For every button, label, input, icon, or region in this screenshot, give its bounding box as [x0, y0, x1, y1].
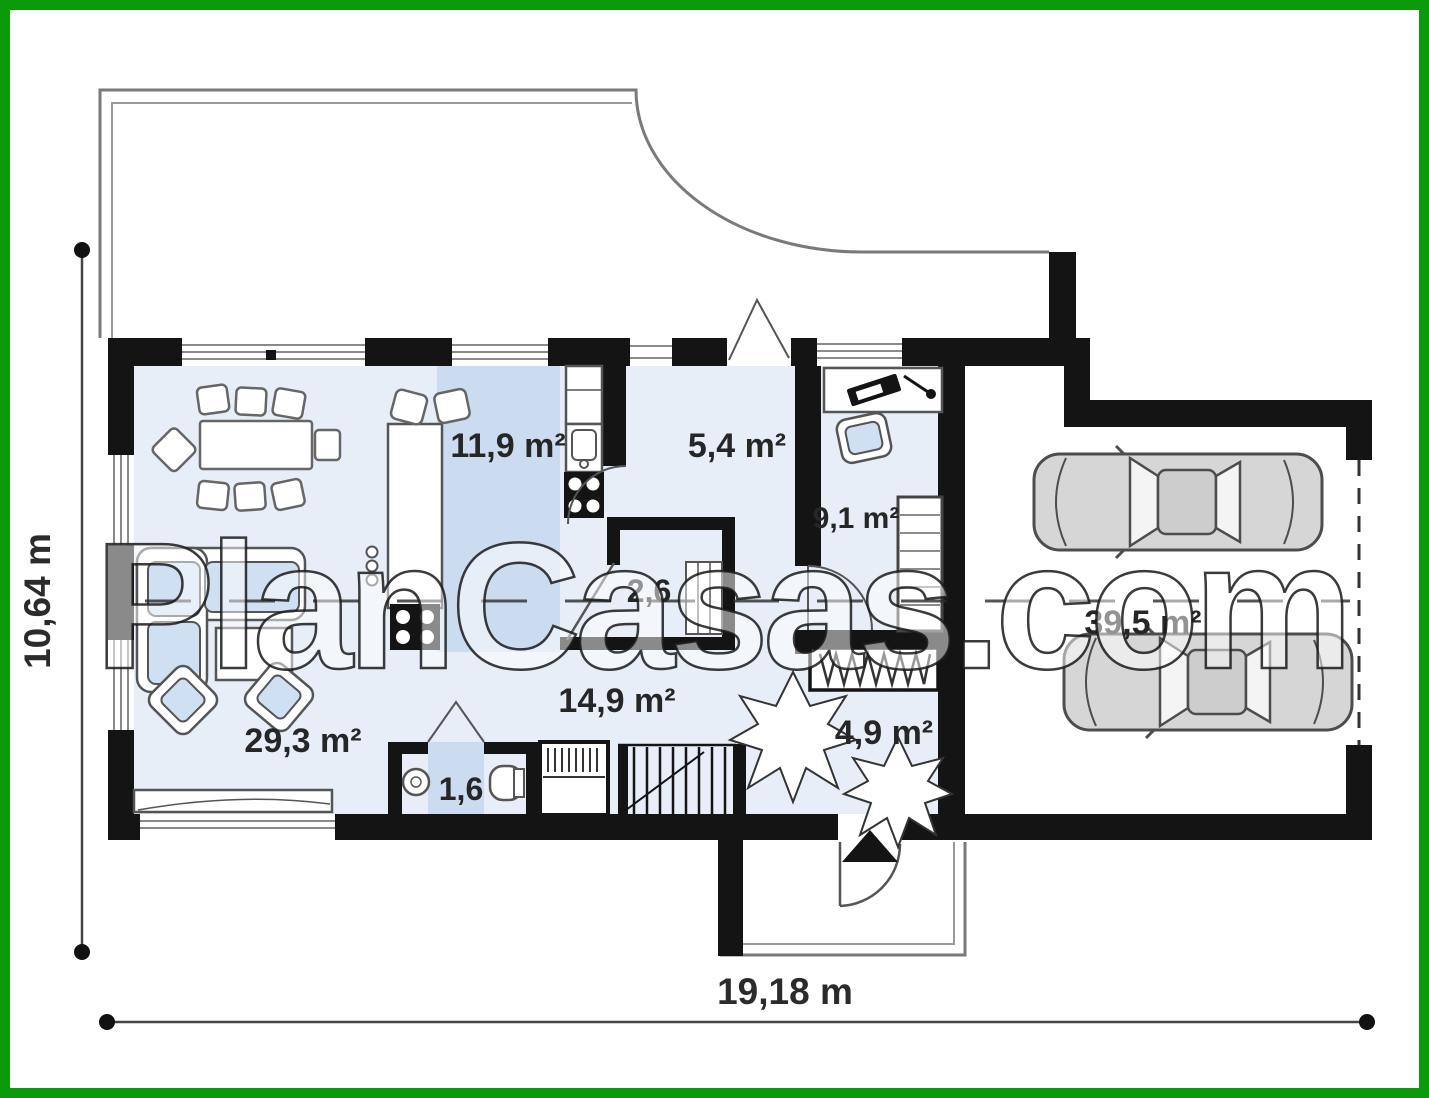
room-label-living: 29,3 m² — [244, 722, 361, 760]
floor-plan-page: 10,64 m 19,18 m 29,3 m² 11,9 m² 5,4 m² 9… — [0, 0, 1429, 1098]
window-bottom — [140, 814, 335, 840]
window-kitchen — [452, 338, 548, 366]
dimension-width-label: 19,18 m — [717, 971, 853, 1012]
window-living — [182, 338, 365, 366]
dimension-height-label: 10,64 m — [17, 533, 58, 669]
terrace — [100, 90, 1049, 338]
sideboard — [134, 790, 332, 812]
room-label-corridor: 5,4 m² — [688, 427, 786, 465]
dimension-height: 10,64 m — [17, 242, 90, 960]
kitchen-counter — [564, 366, 604, 518]
hall-closet — [540, 742, 608, 815]
room-label-kitchen: 11,9 m² — [450, 427, 565, 465]
room-label-wc: 1,6 — [439, 771, 483, 807]
window-office — [817, 338, 902, 366]
window-corridor — [630, 338, 672, 366]
office-chair — [835, 411, 893, 464]
porch — [720, 842, 965, 955]
watermark-text: PlanCasas.com — [95, 506, 1348, 707]
floor-plan-svg: 10,64 m 19,18 m 29,3 m² 11,9 m² 5,4 m² 9… — [0, 0, 1429, 1098]
room-label-vestibule: 4,9 m² — [835, 714, 933, 752]
office-desk — [824, 368, 942, 412]
dimension-width: 19,18 m — [99, 971, 1375, 1030]
